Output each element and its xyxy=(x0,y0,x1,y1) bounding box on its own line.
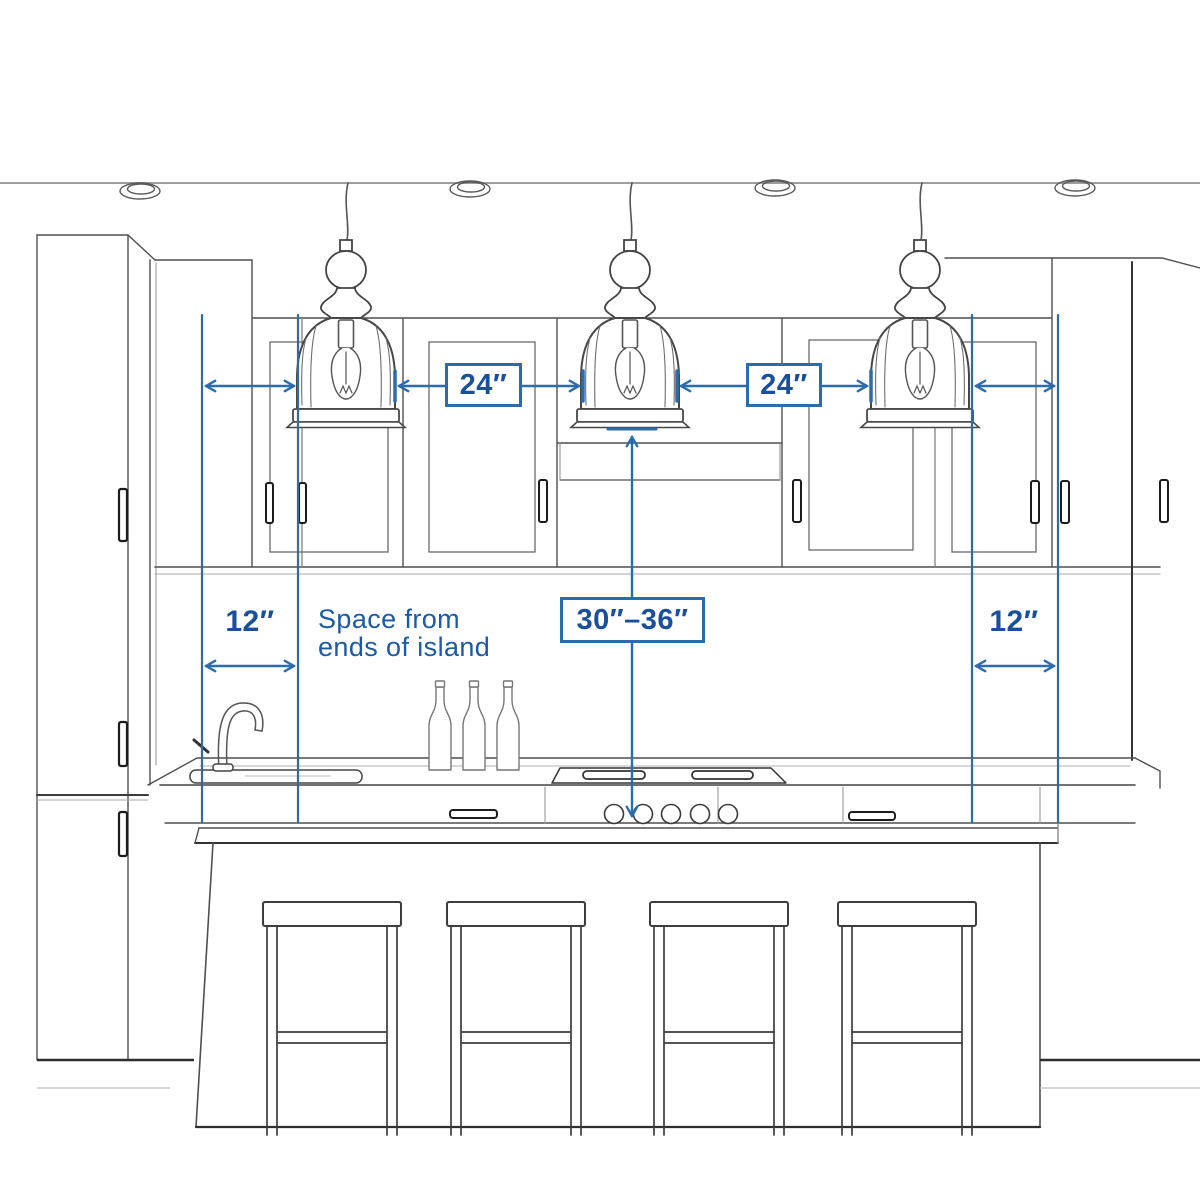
pendant-light-left xyxy=(287,183,405,428)
bar-stool xyxy=(447,902,585,1135)
recessed-light-icon xyxy=(120,183,160,199)
note-space-from-ends: Space from ends of island xyxy=(318,606,490,661)
note-line-2: ends of island xyxy=(318,634,490,662)
label-pendant-spacing-left: 24″ xyxy=(445,363,522,407)
faucet-and-sink xyxy=(190,703,362,783)
bar-stool xyxy=(263,902,401,1135)
pendant-light-right xyxy=(861,183,979,428)
pendant-spacing-diagram: 24″ 24″ 30″–36″ 12″ 12″ Space from ends … xyxy=(0,0,1200,1200)
bar-stools xyxy=(263,902,976,1135)
left-tall-cabinets xyxy=(37,235,156,1060)
label-height-above-counter: 30″–36″ xyxy=(560,597,705,643)
wine-bottles xyxy=(429,681,519,770)
pendant-lights xyxy=(287,183,979,428)
cooktop xyxy=(552,768,786,783)
bar-stool xyxy=(838,902,976,1135)
label-island-end-space-right: 12″ xyxy=(964,605,1064,639)
label-pendant-spacing-right: 24″ xyxy=(746,363,822,407)
floor-lines xyxy=(37,1060,1200,1088)
pendant-light-middle xyxy=(571,183,689,428)
bar-stool xyxy=(650,902,788,1135)
label-island-end-space-left: 12″ xyxy=(200,605,300,639)
range-hood xyxy=(557,443,782,480)
note-line-1: Space from xyxy=(318,606,490,634)
